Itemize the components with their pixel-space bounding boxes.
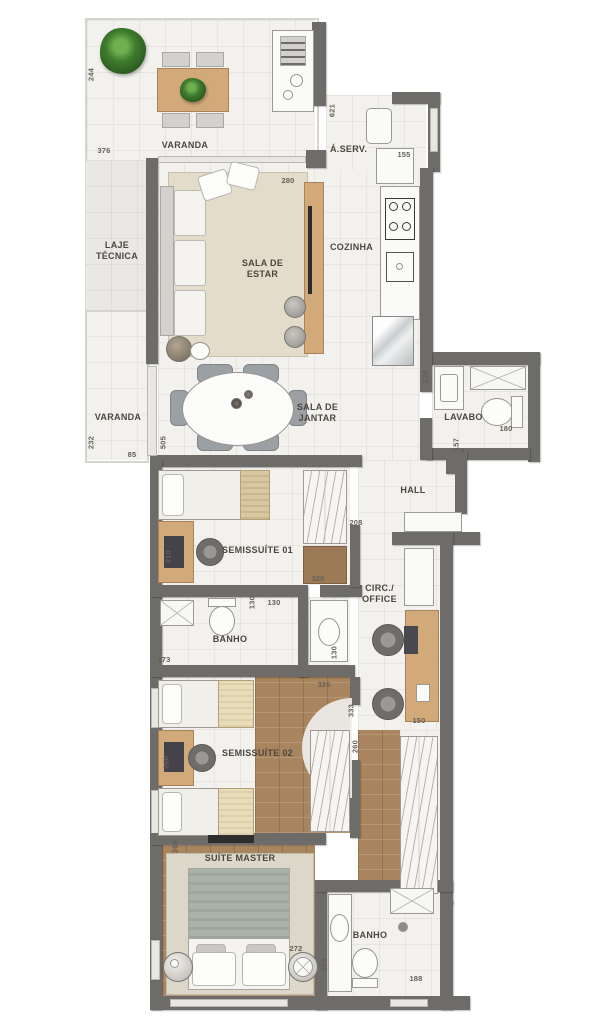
dim-master-width: 272 bbox=[284, 944, 308, 953]
bed-pillow bbox=[162, 792, 182, 832]
bed-pillow bbox=[192, 952, 236, 986]
office-chair bbox=[372, 624, 404, 656]
wardrobe bbox=[303, 470, 347, 544]
wardrobe bbox=[400, 736, 438, 894]
nightstand-decor bbox=[293, 957, 313, 977]
tv bbox=[308, 206, 312, 294]
wall bbox=[420, 418, 432, 460]
wall bbox=[350, 525, 360, 587]
wall bbox=[455, 452, 467, 514]
dim-banho1-height: 130 bbox=[248, 591, 257, 615]
sofa-cushion bbox=[174, 190, 206, 236]
dim-banho1-floor: 173 bbox=[152, 655, 176, 664]
wall bbox=[298, 585, 308, 677]
toilet-tank bbox=[352, 978, 378, 988]
wall bbox=[306, 150, 326, 168]
room-label-sala-jantar: SALA DE JANTAR bbox=[285, 402, 350, 424]
bench bbox=[162, 52, 190, 67]
dim-banho2-width: 188 bbox=[404, 974, 428, 983]
window bbox=[170, 999, 288, 1007]
wall bbox=[315, 880, 327, 1010]
burner bbox=[389, 222, 398, 231]
fridge bbox=[372, 316, 414, 366]
room-label-semissuite1: SEMISSUÍTE 01 bbox=[205, 545, 310, 556]
desk-paper bbox=[416, 684, 430, 702]
dim-varanda-width: 376 bbox=[92, 146, 116, 155]
sink-counter bbox=[328, 894, 352, 992]
stool bbox=[284, 296, 306, 318]
bed-blanket bbox=[240, 470, 270, 520]
hall-cabinet bbox=[404, 548, 434, 606]
dim-lavabo-width: 180 bbox=[494, 424, 518, 433]
dim-banho1-sink: 130 bbox=[330, 641, 339, 665]
table-decor bbox=[244, 390, 253, 399]
floor-plan: VARANDA Á.SERV. LAJE TÉCNICA SALA DE EST… bbox=[0, 0, 600, 1019]
bed-blanket bbox=[218, 680, 254, 728]
nightstand-decor bbox=[170, 959, 179, 968]
monitor bbox=[404, 626, 418, 654]
entry-door bbox=[404, 512, 462, 532]
dim-hall-width: 208 bbox=[344, 518, 368, 527]
burner bbox=[402, 202, 411, 211]
room-label-varanda-left: VARANDA bbox=[88, 412, 148, 423]
burner bbox=[283, 90, 293, 100]
burner bbox=[290, 74, 303, 87]
toilet bbox=[209, 606, 235, 636]
bench bbox=[196, 113, 224, 128]
master-corridor-wood-floor bbox=[358, 730, 400, 900]
faucet bbox=[396, 263, 403, 270]
wall bbox=[150, 585, 300, 597]
wall bbox=[150, 665, 355, 677]
window bbox=[430, 108, 438, 152]
wall bbox=[426, 448, 530, 460]
room-label-suite-master: SUÍTE MASTER bbox=[185, 853, 295, 864]
dim-hall-height: 157 bbox=[452, 433, 461, 457]
side-table bbox=[166, 336, 192, 362]
dim-master-height: 269 bbox=[171, 835, 180, 859]
dim-semi1-desk: 210 bbox=[164, 545, 173, 569]
wall bbox=[420, 168, 433, 358]
dining-table bbox=[182, 372, 294, 446]
plant bbox=[180, 78, 206, 102]
wall bbox=[150, 455, 362, 467]
room-label-hall: HALL bbox=[393, 485, 433, 496]
dim-banho2-height: 165 bbox=[320, 953, 329, 977]
dim-semi2-right: 260 bbox=[351, 735, 360, 759]
burner bbox=[389, 202, 398, 211]
room-label-sala-estar: SALA DE ESTAR bbox=[220, 258, 305, 280]
dim-varanda-height: 244 bbox=[87, 63, 96, 87]
bed-pillow bbox=[162, 684, 182, 724]
side-table bbox=[190, 342, 210, 360]
wall bbox=[392, 532, 480, 545]
room-label-banho1: BANHO bbox=[200, 634, 260, 645]
wall bbox=[440, 900, 453, 1010]
sofa-cushion bbox=[174, 290, 206, 336]
dim-circ-width: 150 bbox=[407, 716, 431, 725]
room-label-varanda-top: VARANDA bbox=[130, 140, 240, 151]
dim-lavabo-sink: 120 bbox=[421, 365, 430, 389]
bench bbox=[196, 52, 224, 67]
plant bbox=[100, 28, 146, 74]
sofa-cushion bbox=[174, 240, 206, 286]
bed-pillow bbox=[242, 952, 286, 986]
dim-semi1-width: 320 bbox=[306, 574, 330, 583]
burner bbox=[402, 222, 411, 231]
media-counter bbox=[304, 182, 324, 354]
wall bbox=[315, 880, 400, 892]
stool bbox=[284, 326, 306, 348]
shower-shelf bbox=[390, 888, 434, 914]
bench bbox=[162, 113, 190, 128]
room-label-banho2: BANHO bbox=[340, 930, 400, 941]
room-laje-tecnica bbox=[85, 160, 146, 310]
lavabo-cabinet bbox=[470, 366, 526, 390]
window bbox=[147, 366, 157, 456]
room-label-semissuite2: SEMISSUÍTE 02 bbox=[205, 748, 310, 759]
wall bbox=[528, 352, 540, 462]
dim-semi2-width: 320 bbox=[312, 680, 336, 689]
room-label-aserv: Á.SERV. bbox=[330, 144, 390, 155]
bed-blanket bbox=[189, 869, 289, 939]
wall bbox=[146, 158, 158, 364]
table-decor bbox=[231, 398, 242, 409]
wall bbox=[440, 532, 453, 904]
bed-pillow bbox=[162, 474, 184, 516]
shower-box bbox=[160, 600, 194, 626]
window bbox=[390, 999, 428, 1007]
toilet bbox=[352, 948, 378, 978]
bed-blanket bbox=[218, 788, 254, 836]
dim-jantar-height: 505 bbox=[159, 431, 168, 455]
office-chair bbox=[372, 688, 404, 720]
window bbox=[151, 940, 160, 980]
dim-circ-height: 333 bbox=[347, 699, 356, 723]
nightstand bbox=[163, 952, 193, 982]
dim-sala-width: 280 bbox=[276, 176, 300, 185]
dim-cozinha-height: 621 bbox=[328, 99, 337, 123]
wall bbox=[312, 22, 326, 106]
dim-varanda2-height: 232 bbox=[87, 431, 96, 455]
room-label-circ-office: CIRC./ OFFICE bbox=[352, 583, 407, 605]
sofa-back bbox=[160, 186, 174, 336]
grill-icon bbox=[280, 36, 306, 66]
dim-semi2-desk: 260 bbox=[162, 751, 171, 775]
dim-aserv-width: 155 bbox=[392, 150, 416, 159]
wardrobe bbox=[310, 730, 350, 832]
room-label-cozinha: COZINHA bbox=[330, 242, 390, 253]
laundry-tank bbox=[366, 108, 392, 144]
dim-varanda2-width: 85 bbox=[120, 450, 144, 459]
room-label-laje: LAJE TÉCNICA bbox=[88, 240, 146, 262]
room-label-lavabo: LAVABO bbox=[436, 412, 491, 423]
wall bbox=[420, 352, 540, 365]
tv bbox=[208, 835, 254, 843]
lavabo-sink bbox=[440, 374, 458, 402]
dim-banho1-width: 130 bbox=[262, 598, 286, 607]
